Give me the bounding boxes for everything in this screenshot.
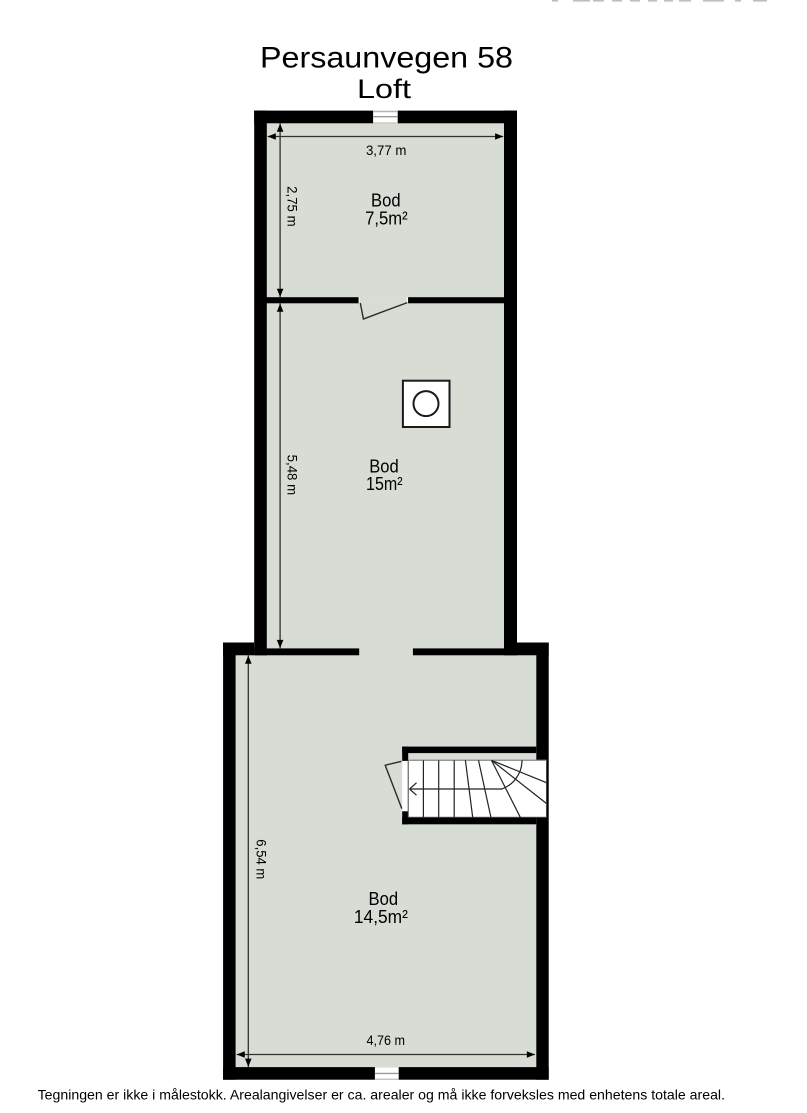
svg-text:Persaunvegen 58: Persaunvegen 58 [260,42,513,75]
svg-text:15m²: 15m² [366,473,403,494]
svg-text:3,77 m: 3,77 m [366,143,407,158]
svg-text:Tegningen er ikke i målestokk.: Tegningen er ikke i målestokk. Arealangi… [38,1086,725,1102]
svg-text:14,5m²: 14,5m² [354,906,408,927]
svg-text:6,54 m: 6,54 m [253,839,268,879]
svg-text:7,5m²: 7,5m² [365,208,408,229]
svg-text:4,76 m: 4,76 m [367,1033,406,1048]
svg-text:2,75 m: 2,75 m [284,186,299,227]
svg-text:5,48 m: 5,48 m [284,455,299,496]
svg-text:Loft: Loft [357,74,412,104]
